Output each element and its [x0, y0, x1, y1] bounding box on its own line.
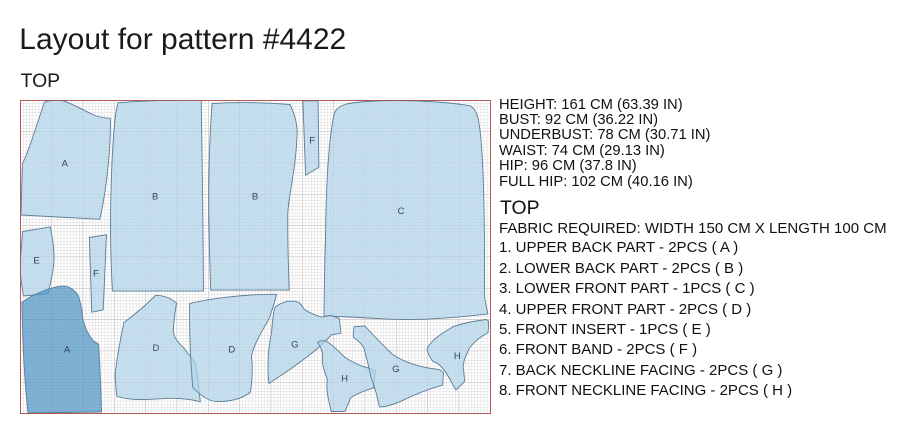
svg-text:F: F	[93, 269, 99, 280]
svg-text:D: D	[228, 345, 235, 356]
svg-text:B: B	[152, 191, 158, 202]
svg-text:G: G	[291, 340, 298, 351]
svg-text:B: B	[252, 191, 258, 202]
svg-text:C: C	[398, 206, 405, 217]
svg-text:A: A	[64, 345, 71, 356]
svg-text:A: A	[62, 159, 69, 170]
svg-text:F: F	[309, 136, 315, 147]
svg-text:H: H	[341, 373, 348, 384]
svg-text:E: E	[33, 256, 39, 267]
svg-text:H: H	[454, 351, 461, 362]
svg-text:D: D	[152, 343, 159, 354]
svg-text:G: G	[392, 364, 399, 375]
